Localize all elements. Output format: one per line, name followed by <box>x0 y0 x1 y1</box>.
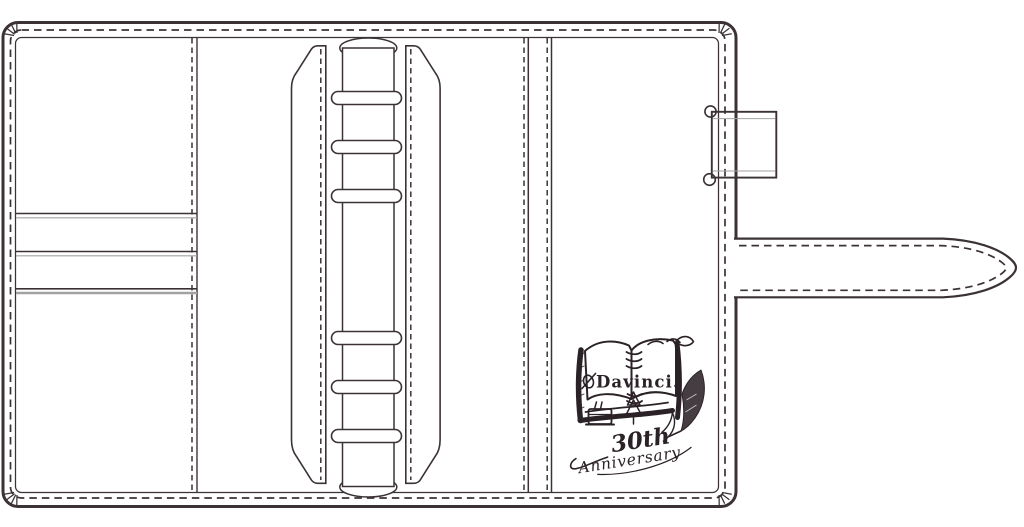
binder-ring-5 <box>332 381 402 394</box>
binder-ring-1 <box>332 92 402 105</box>
stamp-brand-text: Davinci. <box>596 373 680 392</box>
binder-ring-6 <box>332 430 402 443</box>
binder-diagram: Davinci. 30th Anniversary <box>0 0 1024 527</box>
right-lifter-flap <box>406 46 440 484</box>
loop-rivet-bottom <box>704 174 716 186</box>
binder-ring-2 <box>332 141 402 154</box>
spine-bar <box>343 48 395 487</box>
closure-strap <box>734 239 1016 298</box>
binder-ring-4 <box>332 332 402 345</box>
organizer-line-drawing: Davinci. 30th Anniversary <box>0 0 1024 527</box>
ring-spine <box>332 38 402 497</box>
binder-ring-3 <box>332 190 402 203</box>
left-lifter-flap <box>292 46 326 484</box>
